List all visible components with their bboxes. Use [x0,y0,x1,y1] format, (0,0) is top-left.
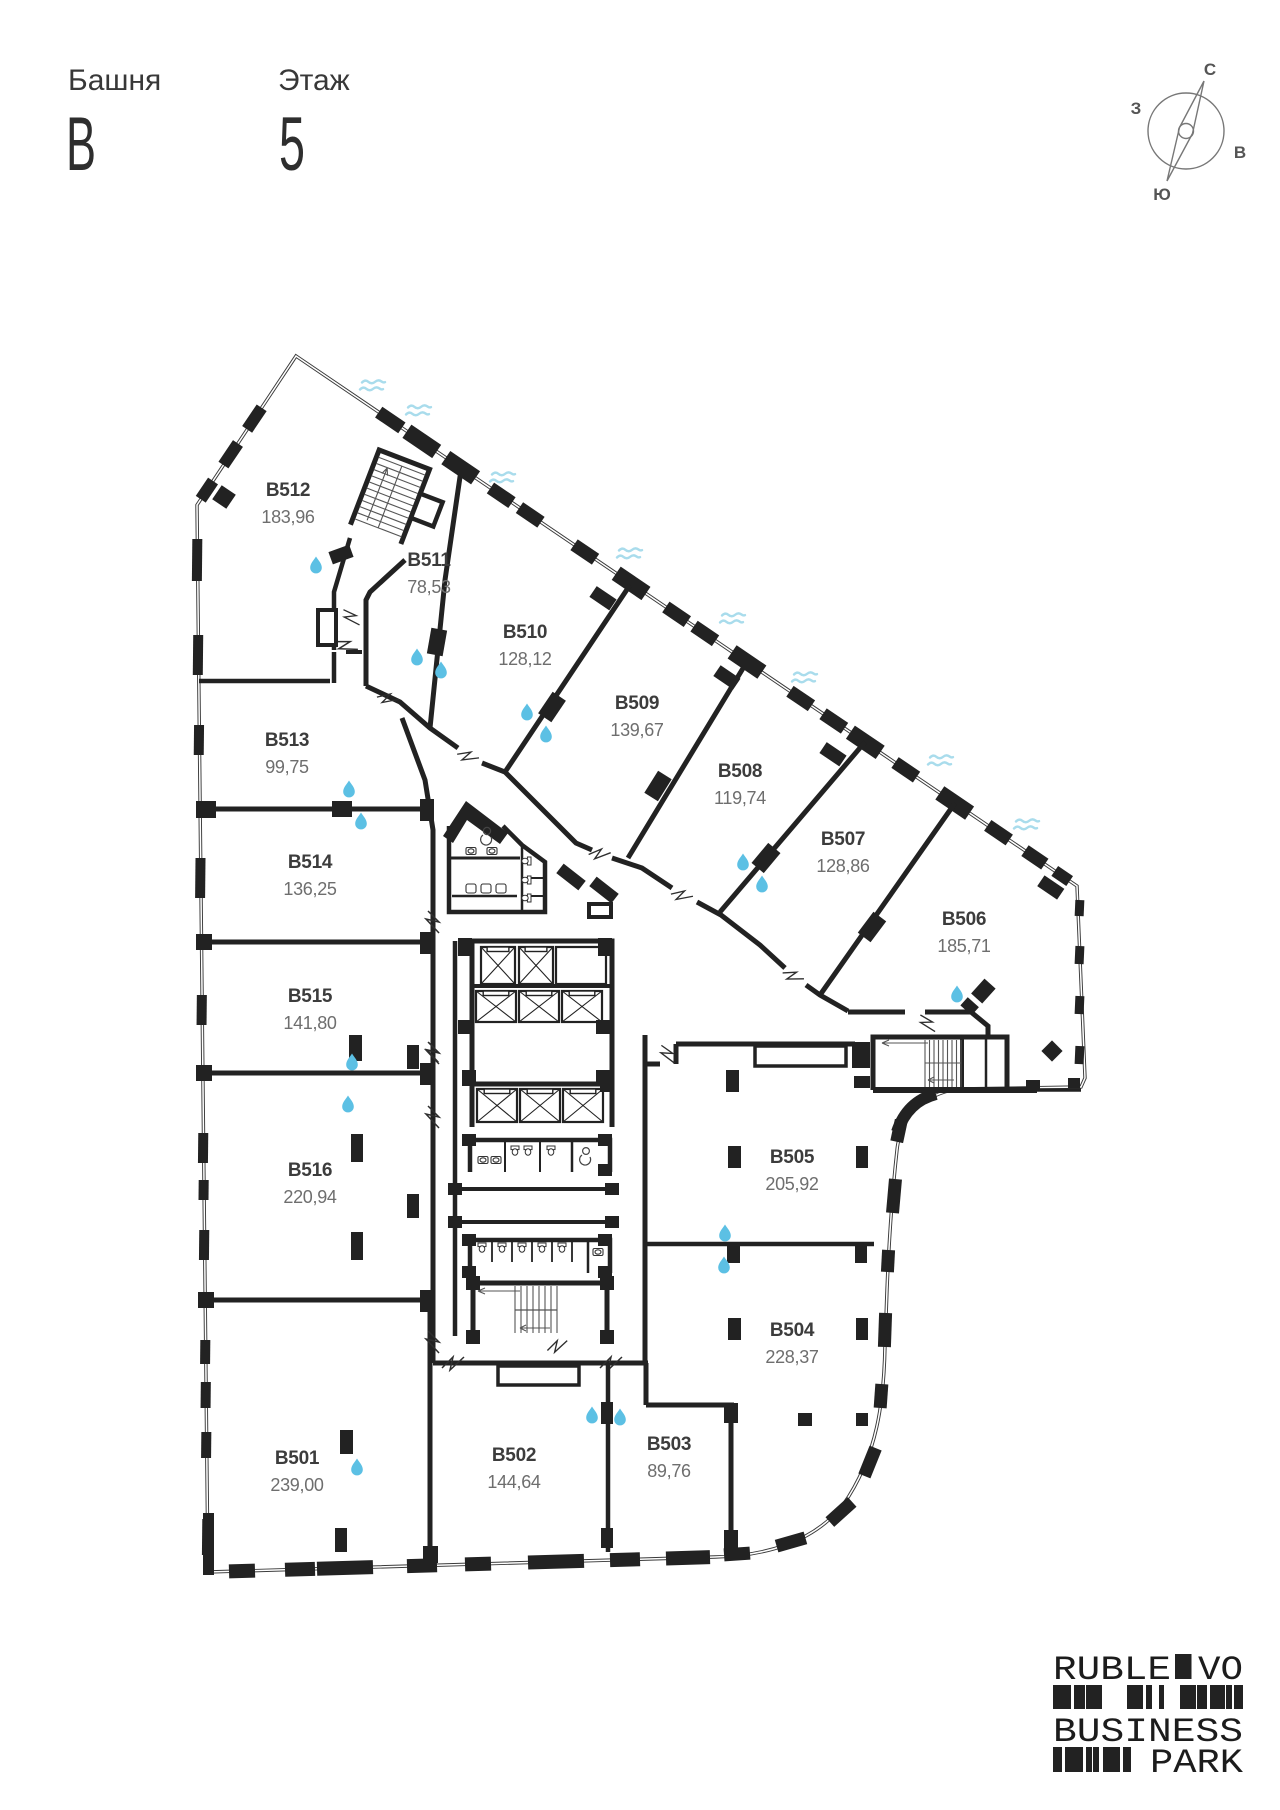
svg-text:139,67: 139,67 [610,720,664,740]
svg-text:PARK: PARK [1150,1745,1244,1783]
svg-text:B502: B502 [492,1445,536,1466]
svg-text:B507: B507 [821,829,865,850]
svg-text:B511: B511 [407,550,451,571]
svg-text:B: B [66,102,96,187]
svg-text:B505: B505 [770,1147,815,1168]
svg-text:89,76: 89,76 [647,1461,691,1481]
svg-text:B504: B504 [770,1320,815,1341]
svg-text:B515: B515 [288,986,333,1007]
svg-text:185,71: 185,71 [937,936,991,956]
svg-text:144,64: 144,64 [487,1472,541,1492]
svg-text:205,92: 205,92 [765,1174,819,1194]
svg-text:239,00: 239,00 [270,1475,324,1495]
svg-text:141,80: 141,80 [283,1013,337,1033]
svg-text:78,53: 78,53 [407,577,451,597]
svg-text:99,75: 99,75 [265,757,309,777]
svg-text:B501: B501 [275,1448,320,1469]
svg-text:B508: B508 [718,761,762,782]
svg-text:5: 5 [279,102,305,187]
svg-text:119,74: 119,74 [714,788,766,808]
svg-text:B512: B512 [266,480,310,501]
svg-text:Этаж: Этаж [278,64,350,97]
svg-text:B510: B510 [503,622,547,643]
svg-text:B503: B503 [647,1434,691,1455]
svg-text:RUBLE: RUBLE [1053,1652,1171,1690]
svg-text:128,12: 128,12 [498,649,552,669]
svg-text:B516: B516 [288,1160,332,1181]
svg-text:B514: B514 [288,852,333,873]
svg-text:183,96: 183,96 [261,507,315,527]
svg-text:Ю: Ю [1153,185,1171,204]
svg-text:З: З [1131,99,1142,118]
svg-text:128,86: 128,86 [816,856,870,876]
svg-text:В: В [1234,143,1246,162]
svg-text:B513: B513 [265,730,309,751]
svg-text:B509: B509 [615,693,659,714]
svg-text:B506: B506 [942,909,986,930]
svg-text:VO: VO [1198,1652,1243,1690]
svg-text:Башня: Башня [68,64,161,97]
svg-text:136,25: 136,25 [283,879,337,899]
svg-text:С: С [1204,60,1216,79]
svg-text:228,37: 228,37 [765,1347,819,1367]
svg-text:220,94: 220,94 [283,1187,337,1207]
